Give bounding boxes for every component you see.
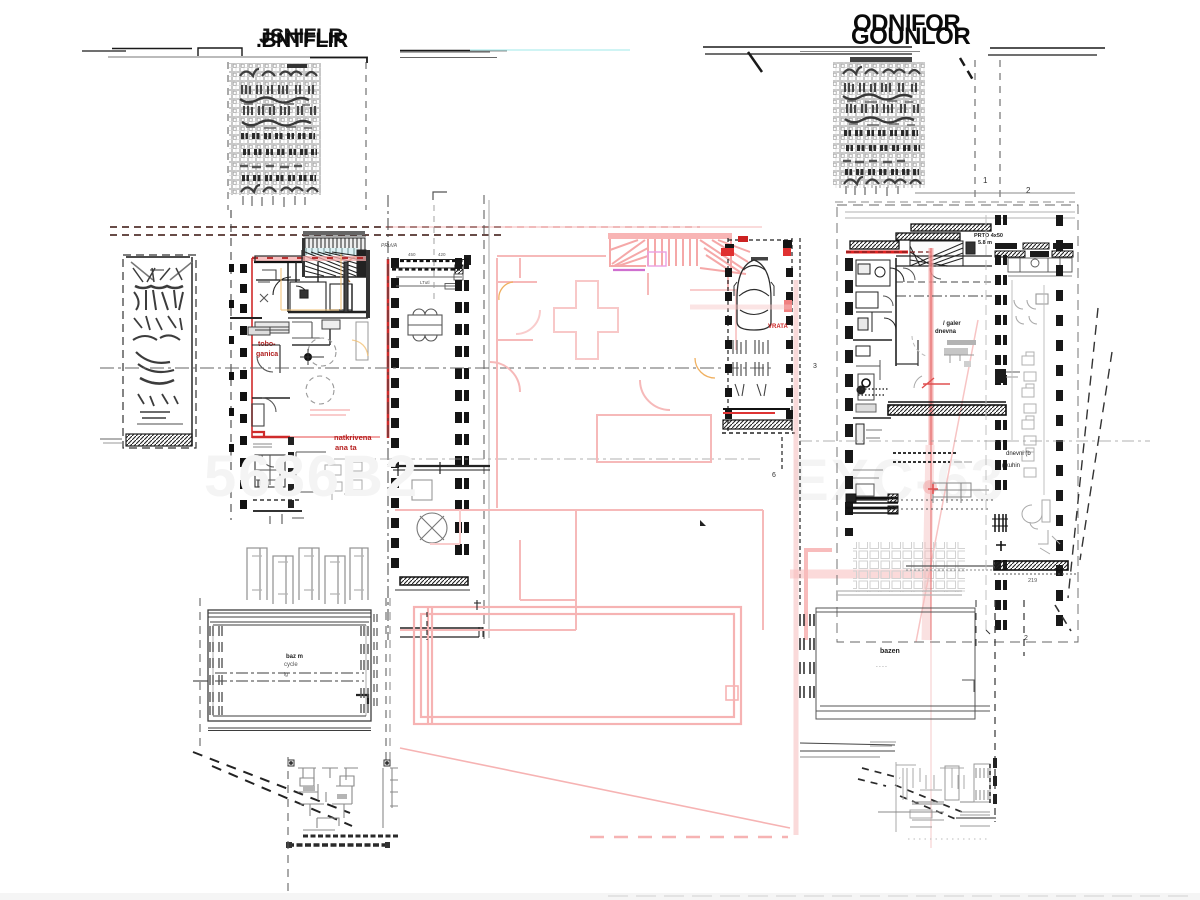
svg-text:450: 450 — [408, 252, 416, 257]
svg-text:( kuhin: ( kuhin — [1002, 463, 1020, 469]
svg-text:bazen: bazen — [880, 648, 900, 655]
svg-text:PRuVA: PRuVA — [381, 243, 398, 249]
svg-text:VRATA: VRATA — [768, 324, 788, 330]
svg-text:2: 2 — [1026, 186, 1031, 195]
svg-text:5.8 m: 5.8 m — [978, 240, 992, 246]
svg-text:dnevni (b: dnevni (b — [1006, 451, 1031, 457]
svg-text:JSNIFLR: JSNIFLR — [259, 25, 343, 48]
svg-text:- - - -: - - - - — [876, 664, 887, 670]
svg-text:5686B2: 5686B2 — [204, 444, 419, 509]
svg-text:LTutl: LTutl — [420, 280, 430, 285]
svg-text:/ galer: / galer — [943, 321, 961, 327]
svg-text:2: 2 — [1024, 635, 1028, 642]
svg-text:PRTO 4x50: PRTO 4x50 — [974, 233, 1003, 239]
svg-text:dnevna: dnevna — [935, 329, 957, 335]
svg-text:natkrivena: natkrivena — [334, 433, 372, 442]
svg-text:ig: ig — [284, 672, 288, 678]
svg-text:baz m: baz m — [286, 654, 303, 660]
svg-text:420: 420 — [438, 252, 446, 257]
svg-text:ODNIFOR: ODNIFOR — [853, 10, 960, 37]
svg-text:3: 3 — [813, 363, 817, 370]
svg-text:cycle: cycle — [284, 662, 298, 668]
svg-text:ganica: ganica — [256, 351, 278, 358]
svg-text:1: 1 — [983, 176, 988, 185]
svg-text:6: 6 — [772, 472, 776, 479]
svg-text:219: 219 — [1028, 578, 1037, 584]
